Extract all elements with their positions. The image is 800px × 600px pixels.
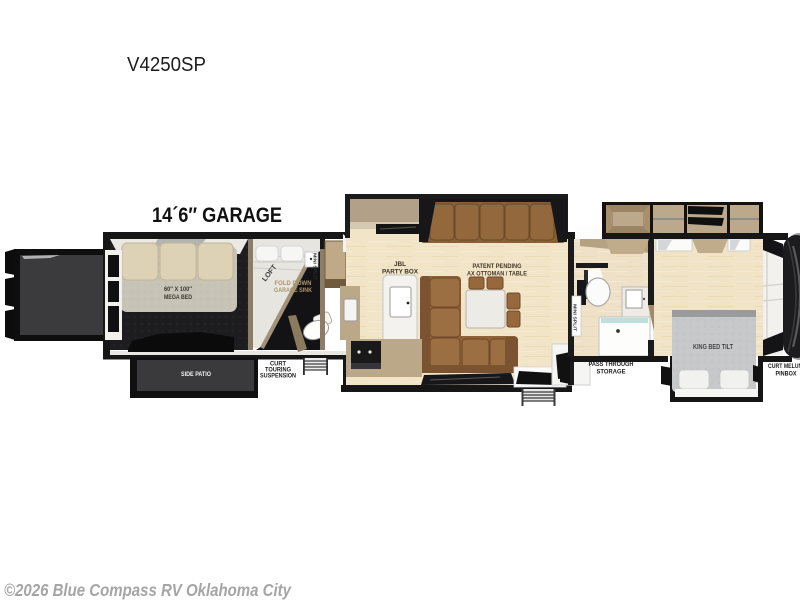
svg-text:SIDE PATIO: SIDE PATIO bbox=[181, 371, 211, 378]
svg-text:60″ X 100″: 60″ X 100″ bbox=[164, 286, 193, 293]
svg-text:SUSPENSION: SUSPENSION bbox=[260, 373, 296, 380]
svg-text:PINBOX: PINBOX bbox=[776, 371, 797, 378]
svg-text:GARAGE SINK: GARAGE SINK bbox=[274, 287, 312, 294]
svg-text:STORAGE: STORAGE bbox=[597, 369, 626, 376]
svg-text:PATENT PENDING: PATENT PENDING bbox=[473, 263, 522, 270]
svg-text:MINI SPLIT: MINI SPLIT bbox=[313, 253, 318, 280]
svg-text:CURT MELUNA: CURT MELUNA bbox=[768, 363, 800, 370]
svg-text:PASS THROUGH: PASS THROUGH bbox=[589, 361, 634, 368]
svg-text:FOLD DOWN: FOLD DOWN bbox=[275, 280, 312, 287]
svg-text:©2026 Blue Compass RV Oklahoma: ©2026 Blue Compass RV Oklahoma City bbox=[4, 580, 292, 600]
svg-text:MINI SPLIT: MINI SPLIT bbox=[573, 304, 578, 331]
svg-text:JBL: JBL bbox=[394, 261, 406, 268]
svg-text:V4250SP: V4250SP bbox=[127, 54, 206, 76]
svg-text:AX OTTOMAN / TABLE: AX OTTOMAN / TABLE bbox=[467, 271, 527, 278]
svg-text:14´6″ GARAGE: 14´6″ GARAGE bbox=[152, 204, 282, 227]
svg-text:KING BED TILT: KING BED TILT bbox=[693, 344, 734, 351]
svg-text:PARTY BOX: PARTY BOX bbox=[382, 269, 418, 276]
svg-text:MEGA BED: MEGA BED bbox=[164, 294, 192, 301]
